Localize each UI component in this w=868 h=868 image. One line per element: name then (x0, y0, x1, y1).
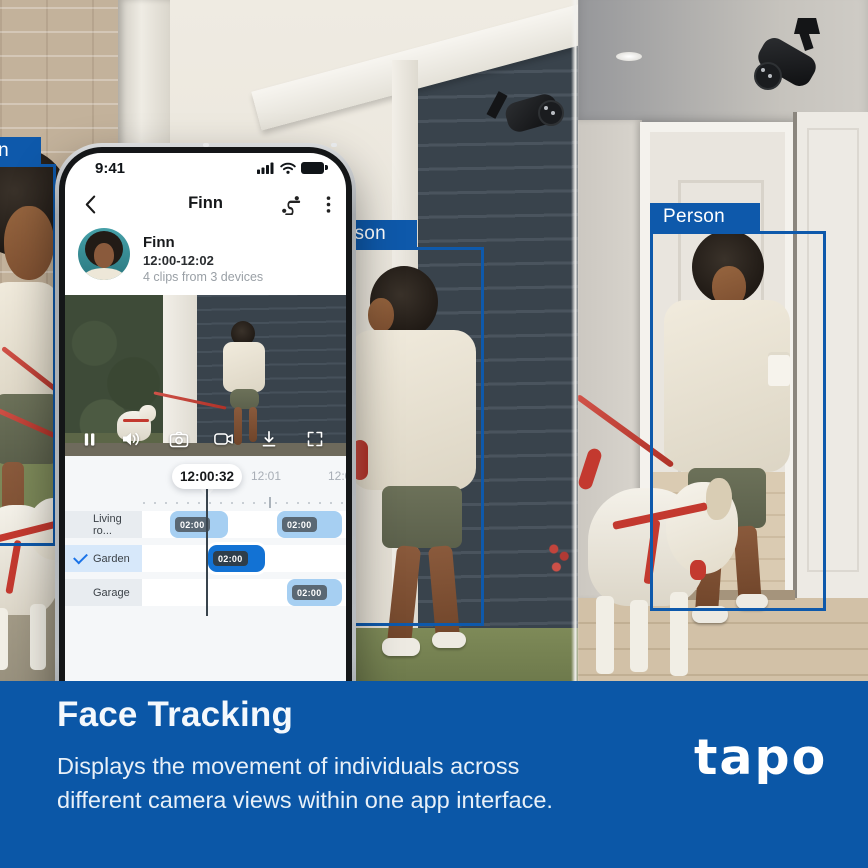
avatar-shoulders (83, 268, 125, 280)
tick-label: 12:01 (251, 469, 281, 483)
mute-button[interactable] (121, 429, 141, 449)
camera-row-label[interactable]: Garage (65, 579, 142, 606)
video-camera-icon (214, 431, 234, 447)
camera-row-label[interactable]: Living ro... (65, 511, 142, 538)
video-person-hoodie (223, 342, 265, 392)
fullscreen-button[interactable] (305, 429, 325, 449)
download-icon (260, 430, 278, 448)
avatar-face (94, 243, 114, 268)
more-vertical-icon (326, 196, 331, 213)
antenna-line (331, 143, 337, 147)
video-dog-harness (123, 419, 149, 422)
detection-label-text: Person (0, 140, 9, 162)
person-name: Finn (143, 234, 175, 251)
feature-description: Displays the movement of individuals acr… (57, 749, 553, 817)
clip-segment[interactable]: 02:00 (287, 579, 342, 606)
phone-bezel: 9:41 Finn (59, 147, 352, 741)
tick-label: 12:02 (328, 469, 346, 483)
panel-separator (571, 0, 579, 681)
promo-image: Person Person Person 9:41 (0, 0, 868, 868)
player-controls (65, 429, 346, 453)
pause-button[interactable] (79, 429, 99, 449)
page-title: Finn (65, 194, 346, 213)
timeline-ruler-tick (269, 497, 271, 508)
check-icon (73, 550, 88, 565)
signal-icon (257, 162, 275, 174)
fullscreen-icon (306, 430, 324, 448)
snapshot-button[interactable] (169, 429, 189, 449)
status-icons (257, 162, 324, 174)
ceiling-light (616, 52, 642, 61)
download-button[interactable] (259, 429, 279, 449)
camera-icon (169, 430, 189, 448)
phone-mockup: 9:41 Finn (55, 143, 356, 745)
tapo-logo: tapo (694, 729, 827, 786)
antenna-line (203, 143, 209, 147)
camera-row-label-selected[interactable]: Garden (65, 545, 142, 572)
feature-title: Face Tracking (57, 695, 293, 735)
dog-leg (30, 604, 46, 670)
playhead-line[interactable] (206, 486, 208, 616)
detection-box-left (0, 164, 56, 546)
detection-label-right: Person (650, 203, 760, 231)
volume-icon (121, 430, 141, 448)
camera-led (761, 68, 765, 72)
record-button[interactable] (214, 429, 234, 449)
feature-banner: Face Tracking Displays the movement of i… (0, 681, 868, 868)
camera-led (551, 111, 555, 115)
clip-duration-badge: 02:00 (213, 551, 248, 566)
pause-icon (81, 431, 98, 448)
clip-duration-badge: 02:00 (175, 517, 210, 532)
track-route-button[interactable] (277, 191, 303, 217)
time-range: 12:00-12:02 (143, 253, 214, 268)
detection-label-text: Person (663, 206, 725, 228)
wifi-icon (280, 162, 296, 174)
detection-box-right (650, 231, 826, 611)
detection-label-left: Person (0, 137, 41, 164)
clip-segment[interactable]: 02:00 (170, 511, 228, 538)
timeline-ruler (143, 502, 346, 504)
clip-duration-badge: 02:00 (282, 517, 317, 532)
more-options-button[interactable] (315, 191, 341, 217)
timeline-track: 02:00 (142, 579, 346, 606)
dog-leg (596, 596, 614, 674)
status-time: 9:41 (95, 160, 125, 177)
camera-led (768, 74, 772, 78)
person-shoe (382, 638, 420, 656)
dog-leg (630, 600, 648, 672)
app-screen: 9:41 Finn (65, 153, 346, 735)
timeline-track: 02:00 02:00 (142, 511, 346, 538)
clip-duration-badge: 02:00 (292, 585, 327, 600)
video-person-shorts (230, 389, 259, 409)
feature-description-line: Displays the movement of individuals acr… (57, 749, 553, 783)
video-player[interactable] (65, 295, 346, 456)
ceiling (578, 0, 868, 128)
clips-summary: 4 clips from 3 devices (143, 270, 263, 284)
camera-led (544, 106, 548, 110)
battery-icon (301, 162, 324, 174)
person-shoe (432, 632, 466, 648)
flower-bush (546, 540, 572, 576)
timeline-track: 02:00 (142, 545, 346, 572)
clip-segment-selected[interactable]: 02:00 (208, 545, 265, 572)
dog-leg (0, 608, 8, 670)
route-icon (280, 194, 301, 215)
clip-segment[interactable]: 02:00 (277, 511, 342, 538)
feature-description-line: different camera views within one app in… (57, 783, 553, 817)
playhead-time-pill: 12:00:32 (172, 464, 242, 489)
avatar[interactable] (78, 228, 130, 280)
